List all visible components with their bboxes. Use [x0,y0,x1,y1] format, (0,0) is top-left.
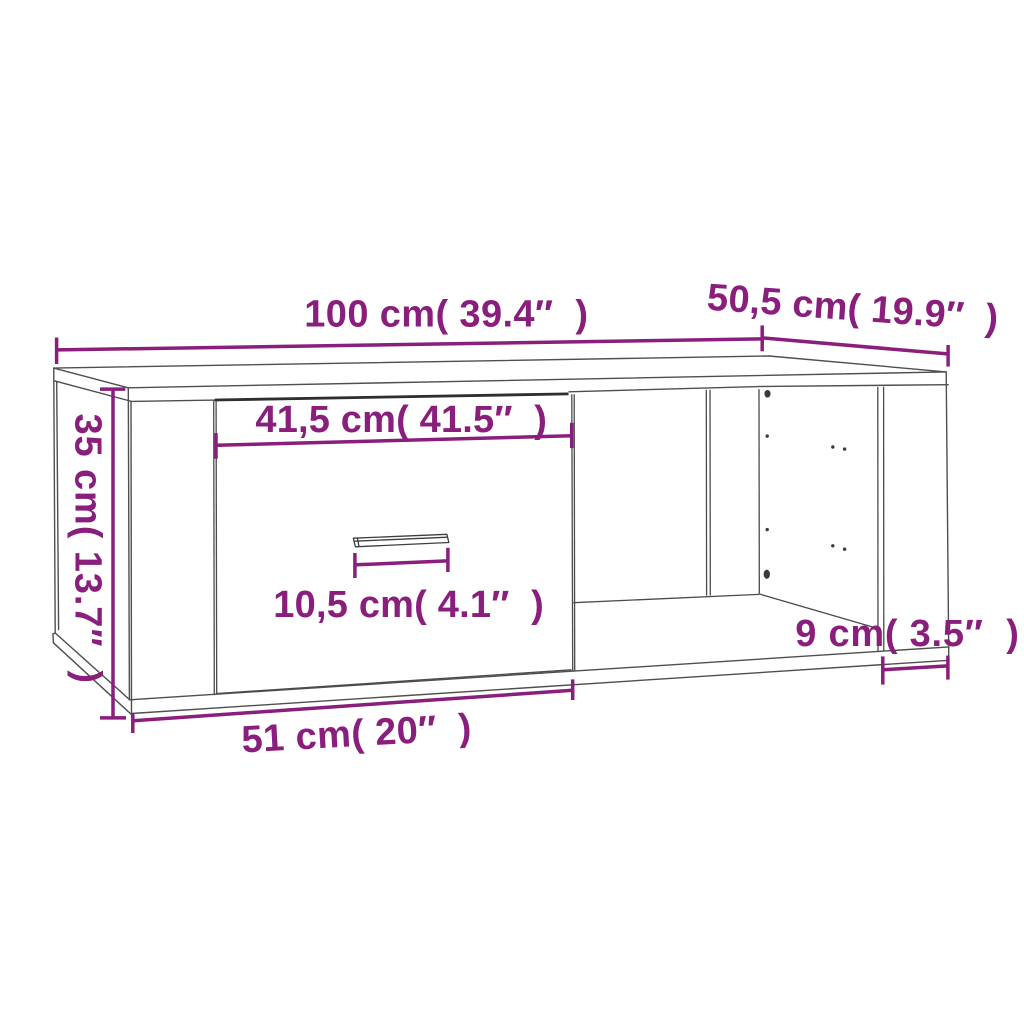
svg-text:9 cm( 3.5″ ): 9 cm( 3.5″ ) [795,613,1019,655]
svg-text:10,5 cm( 4.1″ ): 10,5 cm( 4.1″ ) [273,584,544,626]
svg-text:35 cm( 13.7″ ): 35 cm( 13.7″ ) [67,414,109,684]
svg-text:41,5 cm( 41.5″ ): 41,5 cm( 41.5″ ) [255,399,547,441]
svg-text:100 cm( 39.4″ ): 100 cm( 39.4″ ) [304,294,588,336]
